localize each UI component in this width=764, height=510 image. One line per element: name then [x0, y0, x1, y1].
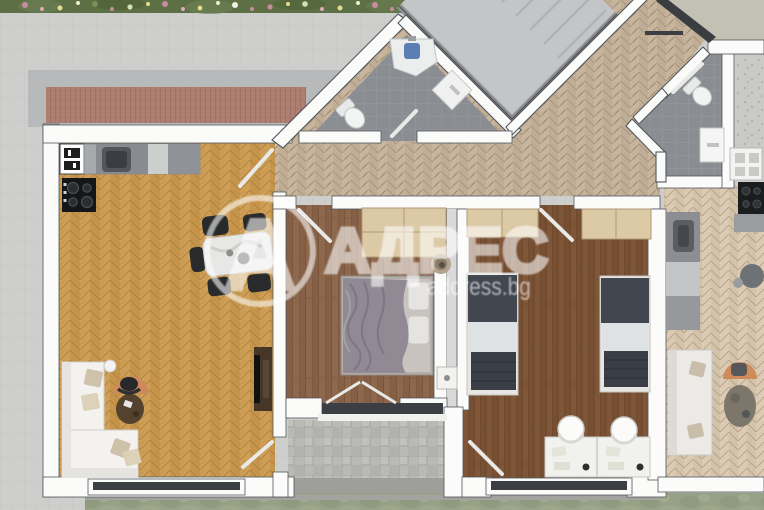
- svg-text:А: А: [224, 199, 296, 311]
- svg-text:address.bg: address.bg: [427, 273, 531, 301]
